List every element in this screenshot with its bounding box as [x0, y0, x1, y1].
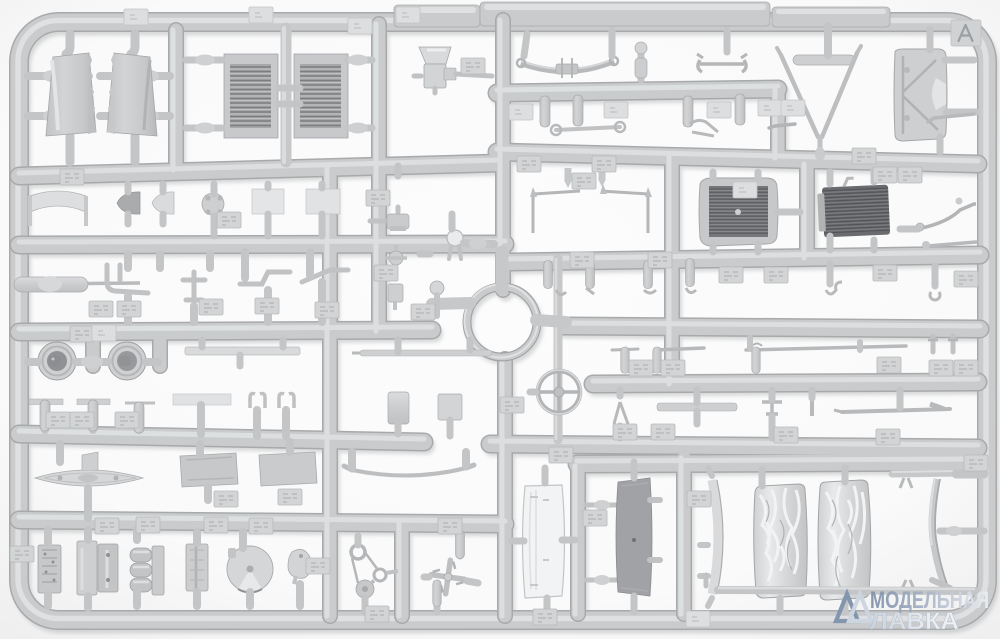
svg-text:ЛАВКА: ЛАВКА: [870, 608, 959, 635]
